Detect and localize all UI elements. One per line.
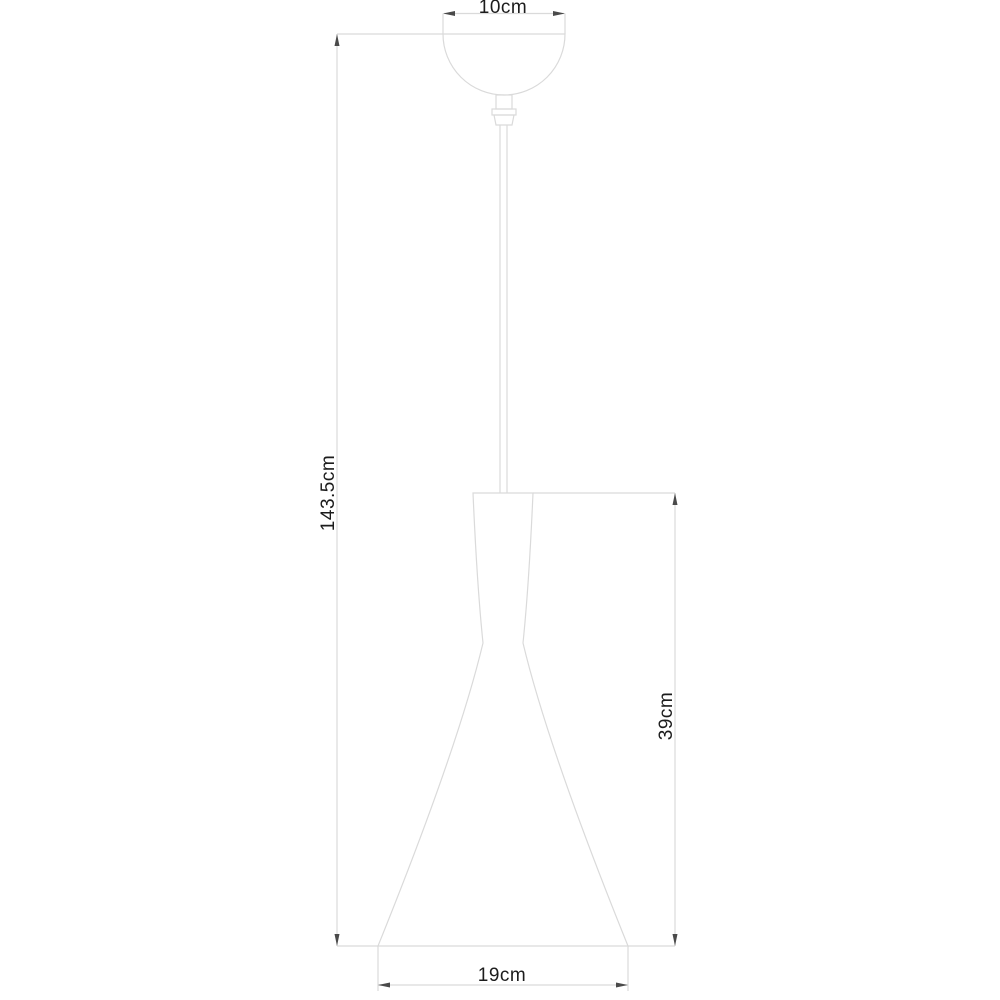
overall-height-arrow-bottom <box>335 934 340 946</box>
shade-diameter-arrow-left <box>378 983 390 988</box>
drawing-canvas: 10cm 143.5cm 39cm 19cm <box>0 0 1000 1000</box>
socket-base <box>494 115 514 125</box>
shade-height-arrow-top <box>673 493 678 505</box>
socket-neck <box>496 95 512 109</box>
shade-height-arrow-bottom <box>673 934 678 946</box>
socket-collar <box>492 109 516 115</box>
canopy-width-label: 10cm <box>479 0 527 18</box>
canopy-width-arrow-left <box>443 11 455 16</box>
shade-outline <box>378 493 628 946</box>
pendant-lamp-diagram: 10cm 143.5cm 39cm 19cm <box>0 0 1000 1000</box>
canopy-width-arrow-right <box>553 11 565 16</box>
cord <box>500 125 507 493</box>
overall-height-label: 143.5cm <box>318 455 339 531</box>
shade-diameter-arrow-right <box>616 983 628 988</box>
shade-height-label: 39cm <box>656 692 677 740</box>
shade-diameter-label: 19cm <box>478 965 526 986</box>
canopy-outline <box>443 34 565 95</box>
overall-height-arrow-top <box>335 34 340 46</box>
